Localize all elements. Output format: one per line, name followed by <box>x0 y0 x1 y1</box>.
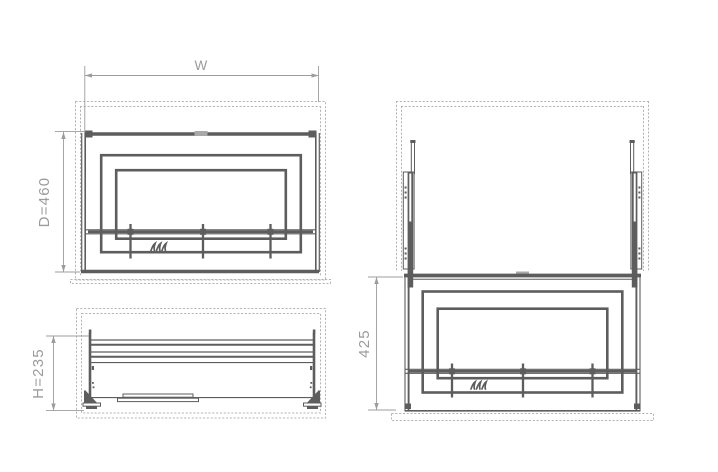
hook-glyph <box>162 243 166 250</box>
top-view-frame <box>81 131 319 273</box>
screw-icon <box>310 366 312 370</box>
lift-arm-left <box>403 140 415 288</box>
extended-view-cabinet <box>396 101 649 271</box>
arrowhead-icon <box>312 73 319 77</box>
bottom-shelf <box>392 414 654 421</box>
foot-pad <box>86 406 97 409</box>
rail-clamp-block <box>128 229 134 235</box>
hole-dot <box>638 197 640 199</box>
hole-dot <box>405 258 407 260</box>
hook-glyph <box>482 382 486 389</box>
rail-clamp-block <box>200 229 206 235</box>
post-cap <box>313 330 316 334</box>
top-view-cabinet <box>71 102 331 284</box>
front-view: H=235 <box>30 309 326 419</box>
foot-pad <box>307 406 318 409</box>
hook-glyph <box>151 243 155 250</box>
foot-edge <box>318 391 320 404</box>
hole-dot <box>405 192 407 194</box>
hole-dot <box>638 248 640 250</box>
arm-slot <box>409 174 411 222</box>
foot-base <box>83 403 101 406</box>
dimension-depth: D=460 <box>36 132 85 272</box>
post-cap <box>89 330 92 334</box>
arrowhead-icon <box>51 336 55 343</box>
hook-glyph <box>477 382 481 389</box>
plate-top <box>123 394 193 397</box>
screw-dot-icon <box>310 386 312 388</box>
screw-dot-icon <box>92 382 94 384</box>
hole-dot <box>638 187 640 189</box>
lift-arm-right <box>630 140 642 288</box>
arrowhead-icon <box>85 73 92 77</box>
frame-center-connector <box>195 131 208 136</box>
rail-clamp-block <box>268 229 274 235</box>
foot-edge <box>84 391 86 404</box>
cabinet-front-edge <box>71 280 331 284</box>
depth-label: D=460 <box>36 177 53 228</box>
top-view: W D=460 <box>36 58 331 284</box>
arrowhead-icon <box>374 403 378 410</box>
screw-dot-icon <box>310 382 312 384</box>
dimension-extension: 425 <box>356 277 403 410</box>
fixing-screws-left <box>92 366 95 388</box>
plate-base <box>118 398 199 401</box>
arrowhead-icon <box>374 277 378 284</box>
hole-dot <box>405 248 407 250</box>
dimension-width: W <box>85 58 319 132</box>
screw-icon <box>92 366 94 370</box>
extension-label: 425 <box>356 329 373 358</box>
front-view-cabinet <box>77 309 326 419</box>
foot-right <box>304 391 322 410</box>
arrowhead-icon <box>61 132 65 139</box>
hook-glyph <box>157 243 161 250</box>
extended-view: 425 <box>356 101 654 421</box>
dimension-height: H=235 <box>30 336 89 411</box>
hole-dot <box>638 258 640 260</box>
height-label: H=235 <box>30 348 47 399</box>
bottom-mounting-plate <box>118 394 199 402</box>
hole-dot <box>405 197 407 199</box>
arm-rod <box>411 143 414 174</box>
arm-slot <box>634 174 636 222</box>
hole-dot <box>405 253 407 255</box>
front-view-unit <box>83 330 321 410</box>
technical-drawing-page: W D=460 <box>0 0 718 472</box>
arrowhead-icon <box>61 265 65 272</box>
screw-dot-icon <box>93 386 95 388</box>
hook-glyph <box>471 382 475 389</box>
fixing-screws-right <box>310 366 312 388</box>
lowered-basket <box>404 272 641 412</box>
rail-clamp-block <box>449 368 455 374</box>
foot-base <box>304 403 322 406</box>
rail-clamp-block <box>590 368 596 374</box>
hanger-hooks-icon <box>471 382 486 389</box>
basket-corner-block <box>634 404 640 410</box>
rail-clamp-block <box>520 368 526 374</box>
arrowhead-icon <box>51 404 55 411</box>
width-label: W <box>195 58 209 73</box>
cabinet-outline <box>77 309 326 419</box>
wardrobe-lift-drawing: W D=460 <box>0 0 718 472</box>
hole-dot <box>638 253 640 255</box>
foot-left <box>83 391 101 410</box>
basket-corner-block <box>406 404 412 410</box>
hole-dot <box>638 192 640 194</box>
arm-rod <box>631 143 634 174</box>
basket-frame-inner <box>116 170 286 239</box>
hole-dot <box>405 187 407 189</box>
hanger-hooks-icon <box>151 243 166 250</box>
